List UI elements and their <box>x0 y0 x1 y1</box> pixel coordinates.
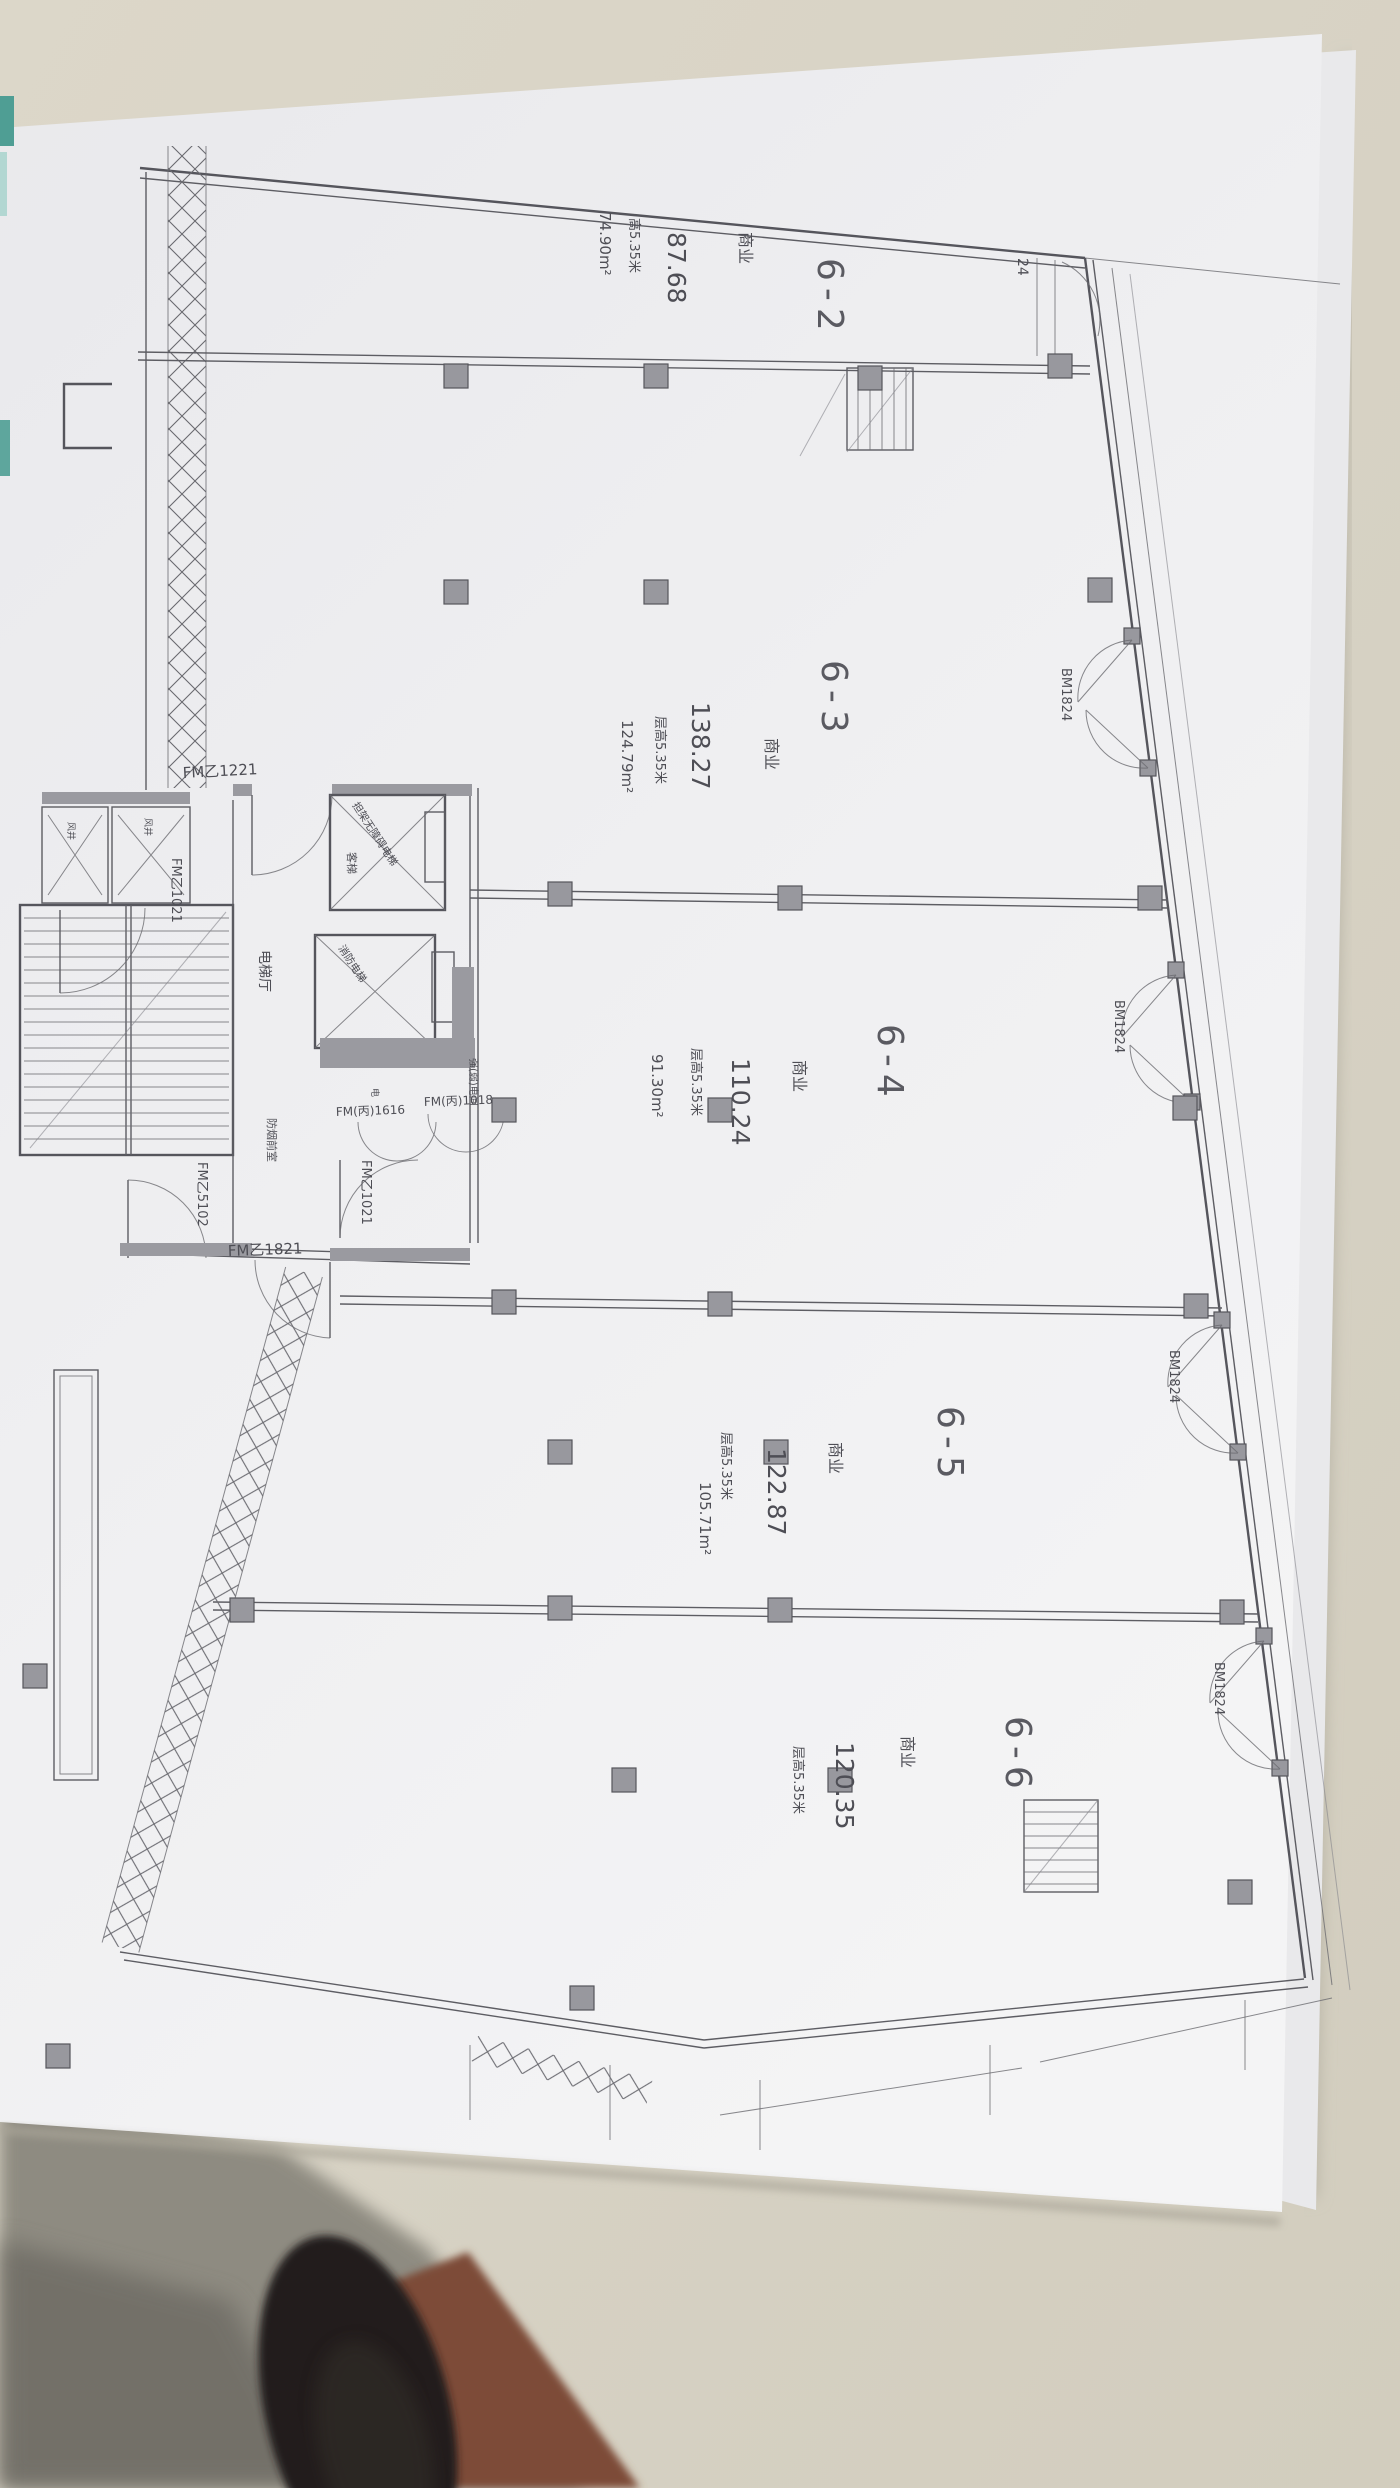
room-label-wind-shaft-2: 风井 <box>142 818 154 836</box>
unit-6-5-height: 层高5.35米 <box>718 1432 734 1500</box>
unit-6-5-use: 商业 <box>826 1442 845 1474</box>
unit-6-6-use: 商业 <box>898 1736 917 1768</box>
door-label-fm1021-stair: FM乙1021 <box>168 858 183 923</box>
unit-6-2-label: 6-2 <box>809 258 850 338</box>
unit-6-6-height: 层高5.35米 <box>790 1746 806 1814</box>
door-label-fm1021-lobby: FM乙1021 <box>358 1160 373 1225</box>
unit-6-3-use: 商业 <box>762 738 781 770</box>
unit-6-5-net: 105.71m² <box>696 1482 714 1555</box>
unit-6-5-label: 6-5 <box>929 1406 970 1486</box>
unit-6-2-area: 87.68 <box>662 232 691 304</box>
floor-plan-photo-canvas: 6-2 商业 87.68 高5.35米 74.90m² 6-3 商业 138.2… <box>0 0 1400 2488</box>
room-label-elec-room: 强(弱)电间 <box>467 1058 480 1106</box>
unit-6-4-height: 层高5.35米 <box>688 1048 704 1116</box>
unit-6-6-label: 6-6 <box>997 1716 1038 1796</box>
door-label-fm5102: FM乙5102 <box>194 1162 209 1227</box>
unit-6-3-net: 124.79m² <box>618 720 636 793</box>
unit-6-4-net: 91.30m² <box>648 1054 666 1118</box>
door-label-bm1824-partial: 24 <box>1014 258 1030 276</box>
room-label-wind-shaft-1: 风井 <box>65 822 77 840</box>
room-label-smoke-lobby: 防烟前室 <box>265 1118 279 1162</box>
hatched-wall-top-left <box>168 146 206 788</box>
unit-6-6-area: 120.35 <box>830 1742 859 1829</box>
room-label-elevator1-type: 客梯 <box>345 852 359 874</box>
door-label-fm1821: FM乙1821 <box>228 1239 303 1260</box>
unit-6-2-use: 商业 <box>736 232 755 264</box>
unit-6-3-area: 138.27 <box>686 702 715 789</box>
door-label-fmc1018: FM(丙)1018 <box>424 1093 494 1109</box>
door-label-bm1824-4: BM1824 <box>1211 1662 1226 1715</box>
door-label-bm1824-1: BM1824 <box>1058 668 1073 721</box>
unit-6-3-label: 6-3 <box>813 660 854 740</box>
door-label-bm1824-2: BM1824 <box>1111 1000 1126 1053</box>
unit-6-2-net: 74.90m² <box>596 212 614 276</box>
door-label-fmc1616: FM(丙)1616 <box>336 1103 406 1119</box>
room-label-elec-char: 电 <box>369 1088 381 1097</box>
unit-6-5-area: 122.87 <box>762 1448 791 1535</box>
unit-6-3-height: 层高5.35米 <box>652 716 668 784</box>
unit-6-4-area: 110.24 <box>726 1058 755 1145</box>
unit-6-4-label: 6-4 <box>869 1024 910 1104</box>
room-label-elevator-hall: 电梯厅 <box>256 950 272 992</box>
photo-of-floor-plan: 6-2 商业 87.68 高5.35米 74.90m² 6-3 商业 138.2… <box>0 0 1400 2488</box>
unit-6-2-height: 高5.35米 <box>626 218 642 273</box>
door-label-bm1824-3: BM1824 <box>1166 1350 1181 1403</box>
unit-6-4-use: 商业 <box>790 1060 809 1092</box>
